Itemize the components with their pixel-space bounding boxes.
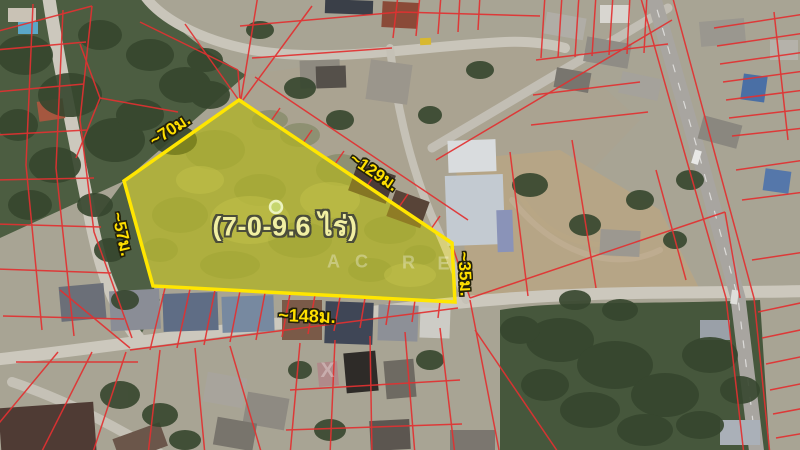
satellite-map-canvas (0, 0, 800, 450)
plot-marker-dot (270, 201, 282, 213)
land-listing-satellite-map: ~70ม. ~129ม. ~57ม. ~148ม. ~35ม. (7-0-9.6… (0, 0, 800, 450)
